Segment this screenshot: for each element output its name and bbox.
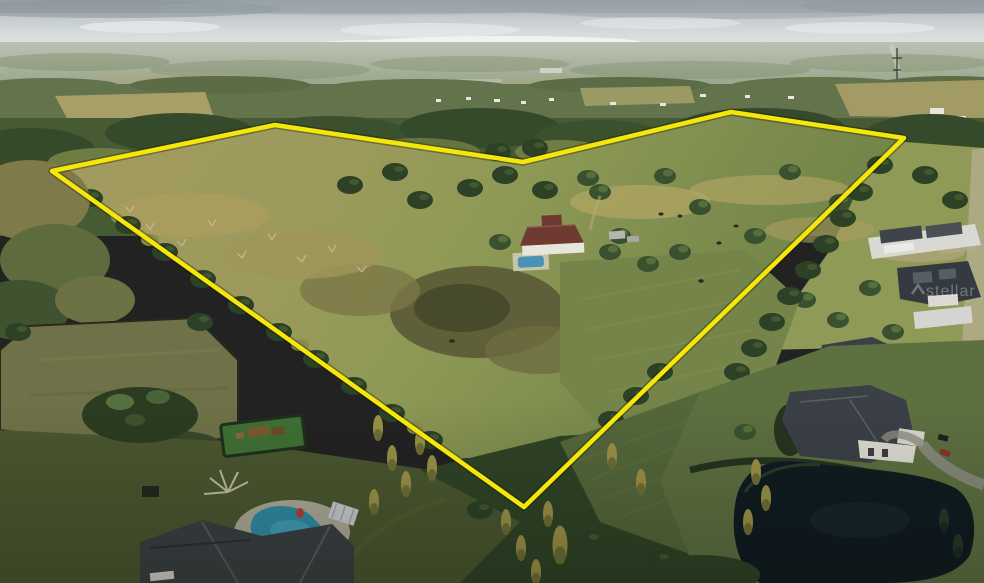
- sky: [0, 0, 984, 48]
- watermark-text: stellar: [926, 283, 976, 300]
- aerial-photo: stellar: [0, 0, 984, 583]
- foreground-shadow: [0, 400, 984, 583]
- outbuilding: [609, 230, 626, 239]
- cloud: [80, 21, 220, 33]
- farm-pool: [518, 256, 545, 268]
- distant-warehouse: [540, 68, 562, 73]
